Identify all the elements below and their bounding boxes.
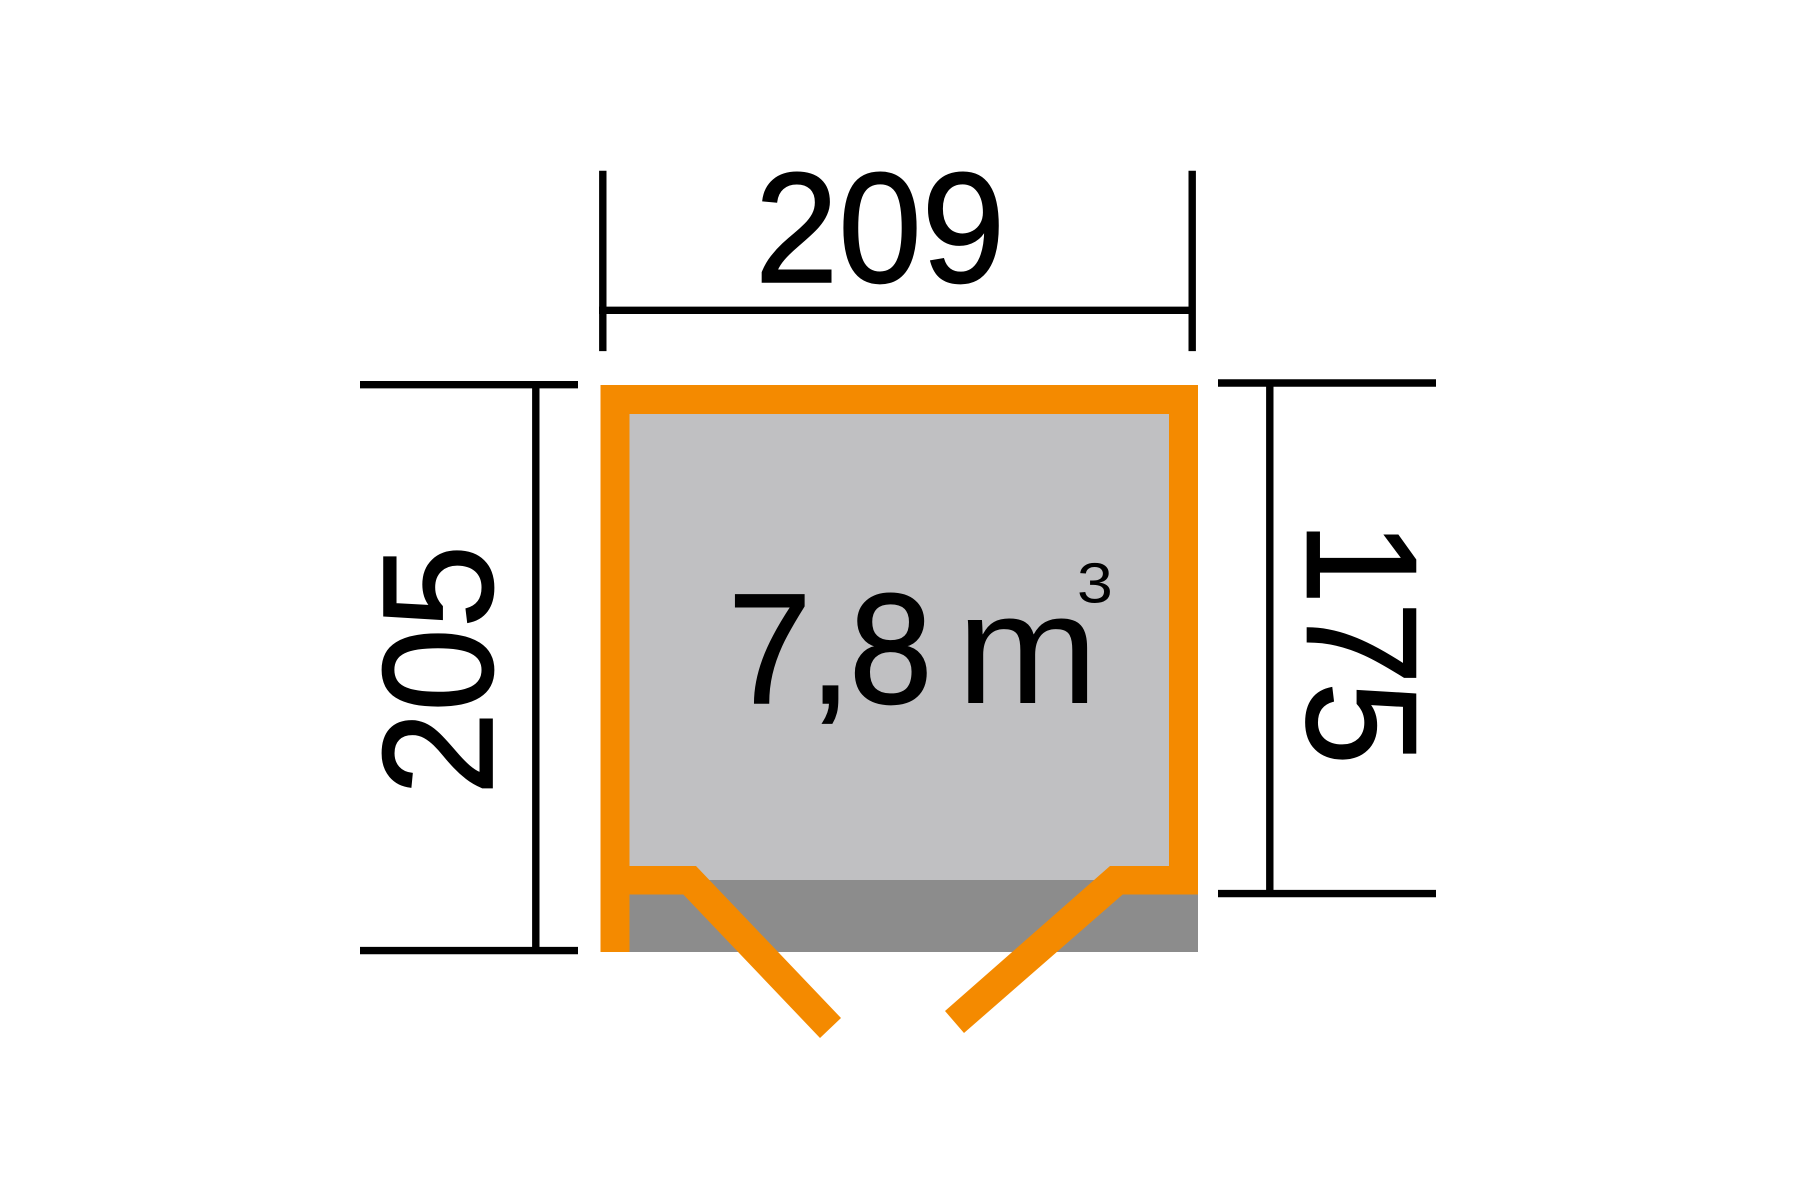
svg-text:7,8: 7,8 <box>728 561 930 737</box>
svg-text:175: 175 <box>1274 521 1450 762</box>
svg-text:209: 209 <box>755 140 1005 316</box>
svg-text:205: 205 <box>350 545 526 795</box>
svg-text:3: 3 <box>1077 551 1113 614</box>
